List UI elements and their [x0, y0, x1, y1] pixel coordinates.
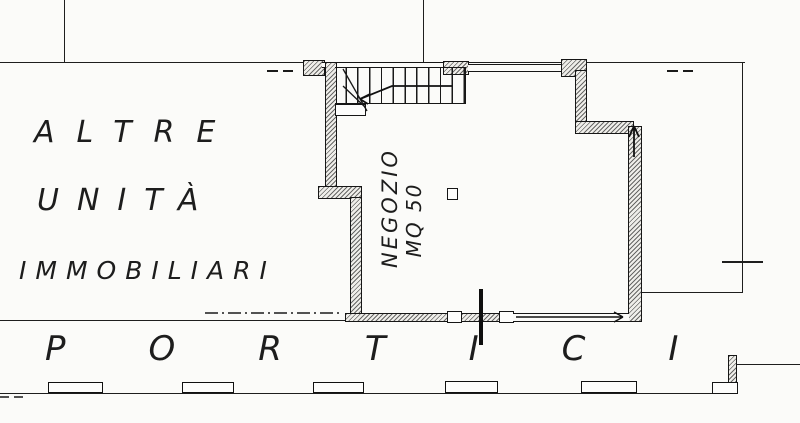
- boundary-line-left-vertical: [64, 0, 65, 63]
- label-shop-area: MQ 50: [404, 182, 424, 258]
- portico-pillar-4: [445, 381, 498, 393]
- boundary-line-right-horizontal: [638, 292, 743, 293]
- wall-bottom-segment-1: [345, 313, 449, 322]
- portico-pillar-1: [48, 382, 103, 393]
- fixture-symbol: [447, 188, 458, 200]
- label-other-units-line1: ALTRE: [34, 118, 237, 148]
- label-shop-name: NEGOZIO: [380, 143, 402, 273]
- wall-right-upper: [575, 70, 587, 127]
- shopfront-window-top: [468, 64, 563, 72]
- label-portico: PORTICI: [45, 332, 761, 366]
- shopfront-window-bottom: [513, 313, 629, 322]
- label-other-units-line3: IMMOBILIARI: [19, 258, 276, 283]
- portico-corner-pier: [712, 382, 738, 394]
- portico-top-line: [0, 320, 348, 321]
- portico-pillar-3: [313, 382, 364, 393]
- boundary-cross-tick: [722, 261, 763, 263]
- boundary-line-right-vertical: [742, 62, 743, 293]
- portico-pillar-5: [581, 381, 637, 393]
- boundary-line-mid-vertical: [423, 0, 424, 62]
- wall-left-lower: [350, 197, 362, 315]
- staircase: [335, 67, 466, 104]
- stair-landing: [335, 104, 366, 116]
- portico-pillar-2: [182, 382, 234, 393]
- wall-bottom-jamb-1: [447, 311, 462, 323]
- wall-right-lower: [628, 126, 642, 322]
- label-other-units-line2: UNITÀ: [37, 186, 216, 216]
- portico-bottom-line: [0, 393, 738, 394]
- floor-plan-canvas: ALTRE UNITÀ IMMOBILIARI NEGOZIO MQ 50 PO…: [0, 0, 800, 423]
- wall-right-step: [575, 121, 634, 134]
- wall-bottom-jamb-2: [499, 311, 514, 323]
